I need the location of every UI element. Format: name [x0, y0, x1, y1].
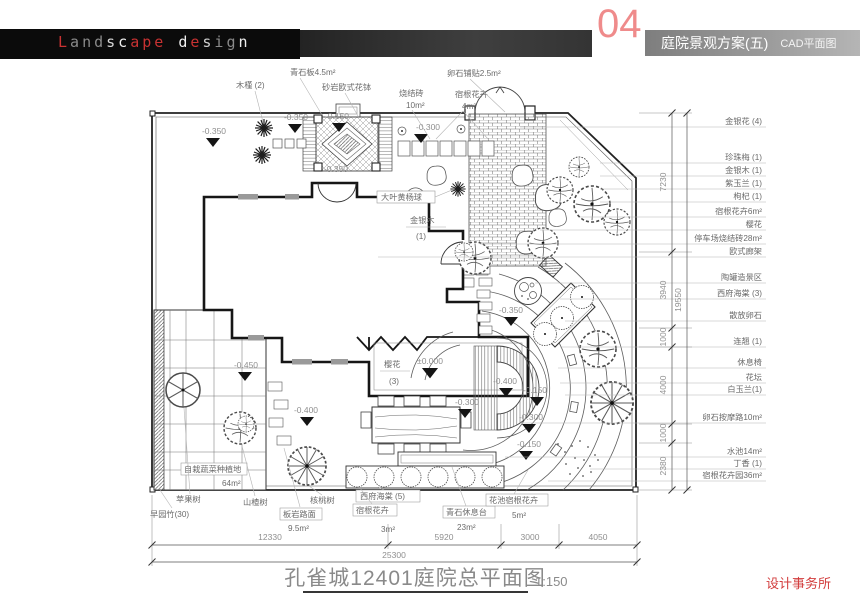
crabapple-row [346, 466, 504, 488]
elev-text: -0.300 [455, 397, 479, 407]
bamboo-strip [154, 310, 164, 490]
logo-letter: e [190, 33, 202, 51]
logo-letter: s [202, 33, 214, 51]
stone-bench [398, 452, 496, 466]
logo-letter: c [118, 33, 130, 51]
label-top-3: 烧结砖 [399, 88, 424, 98]
dim-bottom-3: 4050 [589, 532, 608, 542]
drawing-scale: 1:150 [535, 574, 568, 589]
elev-text: -0.350 [202, 126, 226, 136]
label-yinghua-count: (3) [389, 377, 399, 386]
sheet-number: 04 [597, 2, 642, 47]
label-bottom-2: 自栽蔬菜种植地 [184, 464, 241, 474]
dim-right-total: 19550 [673, 288, 683, 312]
dim-right-2: 1000 [658, 327, 668, 346]
label-right-18: 丁香 (1) [733, 458, 762, 468]
dim-right-1: 3940 [658, 280, 668, 299]
label-right-14: 花坛 [746, 372, 762, 382]
label-bottom-12: 23m² [457, 523, 476, 532]
label-right-13: 休息椅 [737, 357, 762, 367]
label-right-9: 陶罐造景区 [721, 272, 762, 282]
design-firm: 设计事务所 [766, 576, 831, 591]
label-bottom-8: 西府海棠 (5) [360, 491, 405, 501]
label-top-7: 4m² [462, 102, 476, 111]
logo-letter: L [58, 33, 70, 51]
label-bottom-7: 核桃树 [310, 495, 335, 505]
label-right-5: 宿根花卉6m² [715, 206, 762, 216]
label-right-6: 樱花 [746, 219, 762, 229]
label-top-1: 青石板4.5m² [290, 67, 336, 77]
label-right-16: 卵石按摩路10m² [702, 412, 762, 422]
sheet-title: 庭院景观方案(五) [661, 33, 768, 53]
elev-text: -0.400 [493, 376, 517, 386]
label-right-12: 连翘 (1) [733, 336, 762, 346]
logo-letter: n [238, 33, 250, 51]
logo-letter: n [82, 33, 94, 51]
label-boxwood: 大叶黄杨球 [381, 192, 422, 202]
label-bottom-6: 9.5m² [288, 524, 309, 533]
logo-letter: i [214, 33, 226, 51]
label-bottom-1: 早园竹(30) [150, 509, 189, 519]
dim-bottom-2: 3000 [521, 532, 540, 542]
drawing-sheet: -0.350 -0.350 -0.150 -0.350 -0.300 -0.45… [0, 0, 860, 608]
label-right-19: 宿根花卉园36m² [702, 470, 762, 480]
logo-letter: a [70, 33, 82, 51]
label-jinyinmu: 金银木 [410, 215, 435, 225]
elev-text: -0.300 [416, 122, 440, 132]
title-block: 孔雀城12401庭院总平面图 1:150 设计事务所 [284, 567, 831, 592]
pottery-feature [515, 278, 542, 305]
dim-bottom-1: 5920 [435, 532, 454, 542]
dim-right-3: 4000 [658, 375, 668, 394]
elev-text: -0.450 [234, 360, 258, 370]
logo-letter: a [130, 33, 142, 51]
label-bottom-14: 5m² [512, 511, 526, 520]
label-right-11: 散放卵石 [729, 310, 762, 320]
logo-letter: d [94, 33, 106, 51]
label-bottom-11: 青石休息台 [446, 507, 487, 517]
label-top-6: 宿根花卉 [455, 89, 488, 99]
label-top-0: 木槿 (2) [236, 80, 265, 90]
elev-text: -0.350 [499, 305, 523, 315]
label-bottom-0: 苹果树 [176, 494, 201, 504]
logo-letter: e [154, 33, 166, 51]
elev-text: ±0.000 [417, 356, 443, 366]
logo-letter: g [226, 33, 238, 51]
label-bottom-9: 宿根花卉 [356, 505, 389, 515]
label-right-8: 欧式廊架 [729, 246, 762, 256]
cad-plan: -0.350 -0.350 -0.150 -0.350 -0.300 -0.45… [0, 0, 860, 608]
elev-text: -0.350 [324, 164, 348, 174]
label-right-15: 白玉兰(1) [727, 384, 762, 394]
label-bottom-5: 板岩路面 [283, 509, 316, 519]
label-yinghua: 樱花 [384, 359, 400, 369]
label-right-1: 珍珠梅 (1) [725, 152, 762, 162]
elev-text: -0.150 [517, 439, 541, 449]
elev-text: -0.150 [325, 111, 349, 121]
label-right-0: 金银花 (4) [725, 116, 762, 126]
dim-right-4: 1000 [658, 423, 668, 442]
logo-text: Landscape design [58, 33, 251, 51]
dim-bottom-0: 12330 [258, 532, 282, 542]
hibiscus-1 [255, 119, 273, 137]
header-bar-gradient [300, 30, 592, 57]
elev-text: -0.150 [523, 385, 547, 395]
label-jinyinmu-count: (1) [416, 232, 426, 241]
logo-letter: p [142, 33, 154, 51]
header-title-bar: 庭院景观方案(五) CAD平面图 [645, 30, 860, 56]
dim-right-5: 2380 [658, 456, 668, 475]
logo-letter: d [178, 33, 190, 51]
drawing-title: 孔雀城12401庭院总平面图 [284, 567, 545, 590]
label-top-4: 10m² [406, 101, 425, 110]
label-right-3: 紫玉兰 (1) [725, 178, 762, 188]
boxwood-ball [450, 181, 465, 196]
sheet-subtitle: CAD平面图 [780, 35, 836, 51]
logo-letter [166, 33, 178, 51]
label-right-2: 金银木 (1) [725, 165, 762, 175]
elev-text: -0.300 [519, 412, 543, 422]
elev-text: -0.400 [294, 405, 318, 415]
elev-text: -0.350 [284, 112, 308, 122]
label-right-7: 停车场烧结砖28m² [694, 233, 762, 243]
label-bottom-4: 山楂树 [243, 497, 268, 507]
label-top-5: 卵石铺贴2.5m² [447, 68, 501, 78]
label-bottom-13: 花池宿根花卉 [489, 495, 538, 505]
hibiscus-2 [253, 146, 271, 164]
dim-right: 7230 3940 1000 4000 1000 2380 19550 [639, 110, 692, 494]
label-bottom-3: 64m² [222, 479, 241, 488]
dim-bottom-total: 25300 [382, 550, 406, 560]
label-top-2: 砂岩欧式花钵 [322, 82, 371, 92]
logo-letter: s [106, 33, 118, 51]
label-right-10: 西府海棠 (3) [717, 288, 762, 298]
label-right-17: 水池14m² [727, 446, 762, 456]
dim-right-0: 7230 [658, 172, 668, 191]
label-right-4: 枸杞 (1) [733, 191, 762, 201]
